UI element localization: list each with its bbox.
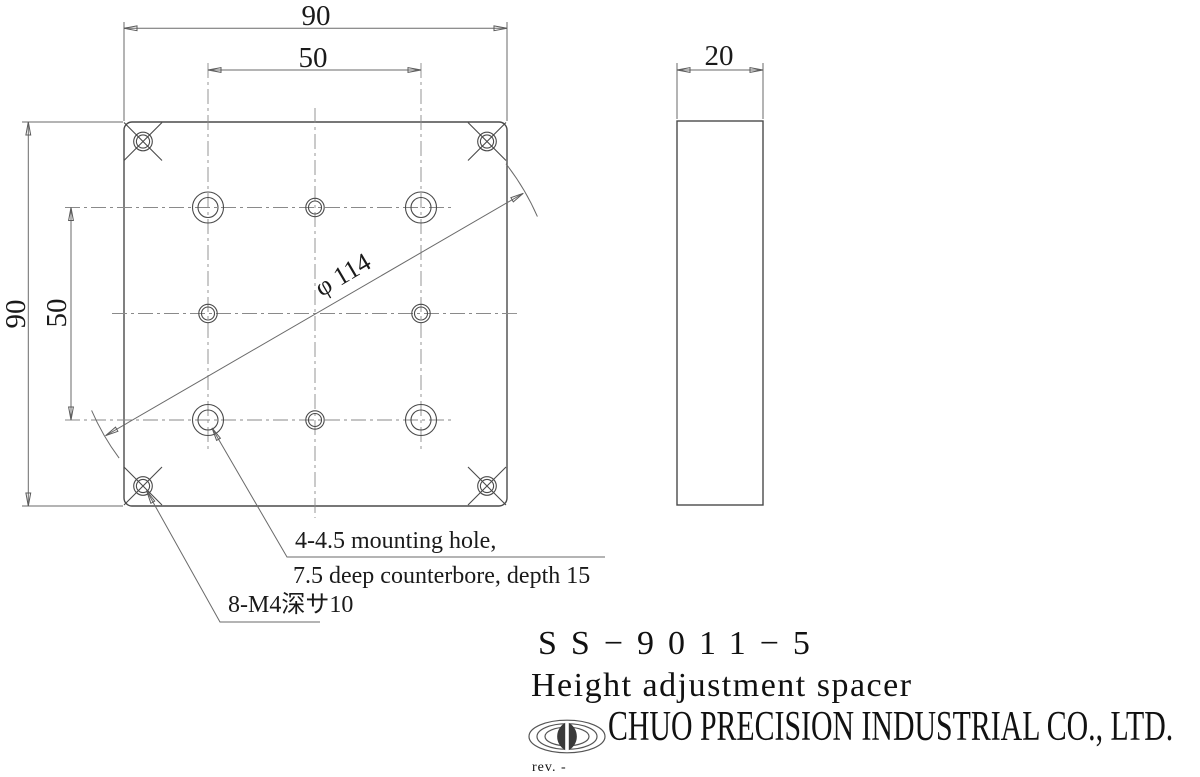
dim-hole-pitch-horizontal-text: 50	[299, 42, 328, 74]
part-name: Height adjustment spacer	[531, 669, 913, 703]
part-number: SS−9011−5	[538, 627, 824, 661]
note-tapped-hole: 8-M4深サ10	[228, 591, 353, 618]
dim-plate-height-text: 90	[0, 300, 32, 329]
company-name: CHUO PRECISION INDUSTRIAL CO., LTD.	[608, 706, 1200, 748]
dim-hole-pitch-vertical: 50	[41, 208, 73, 421]
dim-thickness: 20	[677, 40, 763, 119]
dim-plate-width-text: 90	[302, 0, 331, 32]
leader-tapped-hole: 8-M4深サ10	[147, 491, 354, 623]
revision-label: rev. -	[532, 761, 567, 775]
side-view-outline	[677, 121, 763, 505]
dim-hole-pitch-vertical-text: 50	[41, 299, 73, 328]
front-view	[65, 63, 520, 518]
company-logo-icon	[527, 719, 607, 754]
dim-thickness-text: 20	[705, 40, 734, 72]
technical-drawing-sheet: 90 50 90 50	[0, 0, 1200, 777]
side-view	[677, 121, 763, 505]
dim-hole-pitch-horizontal: 50	[208, 42, 421, 74]
note-mounting-hole-line1: 4-4.5 mounting hole,	[295, 528, 496, 554]
note-mounting-hole-line2: 7.5 deep counterbore, depth 15	[293, 563, 590, 589]
